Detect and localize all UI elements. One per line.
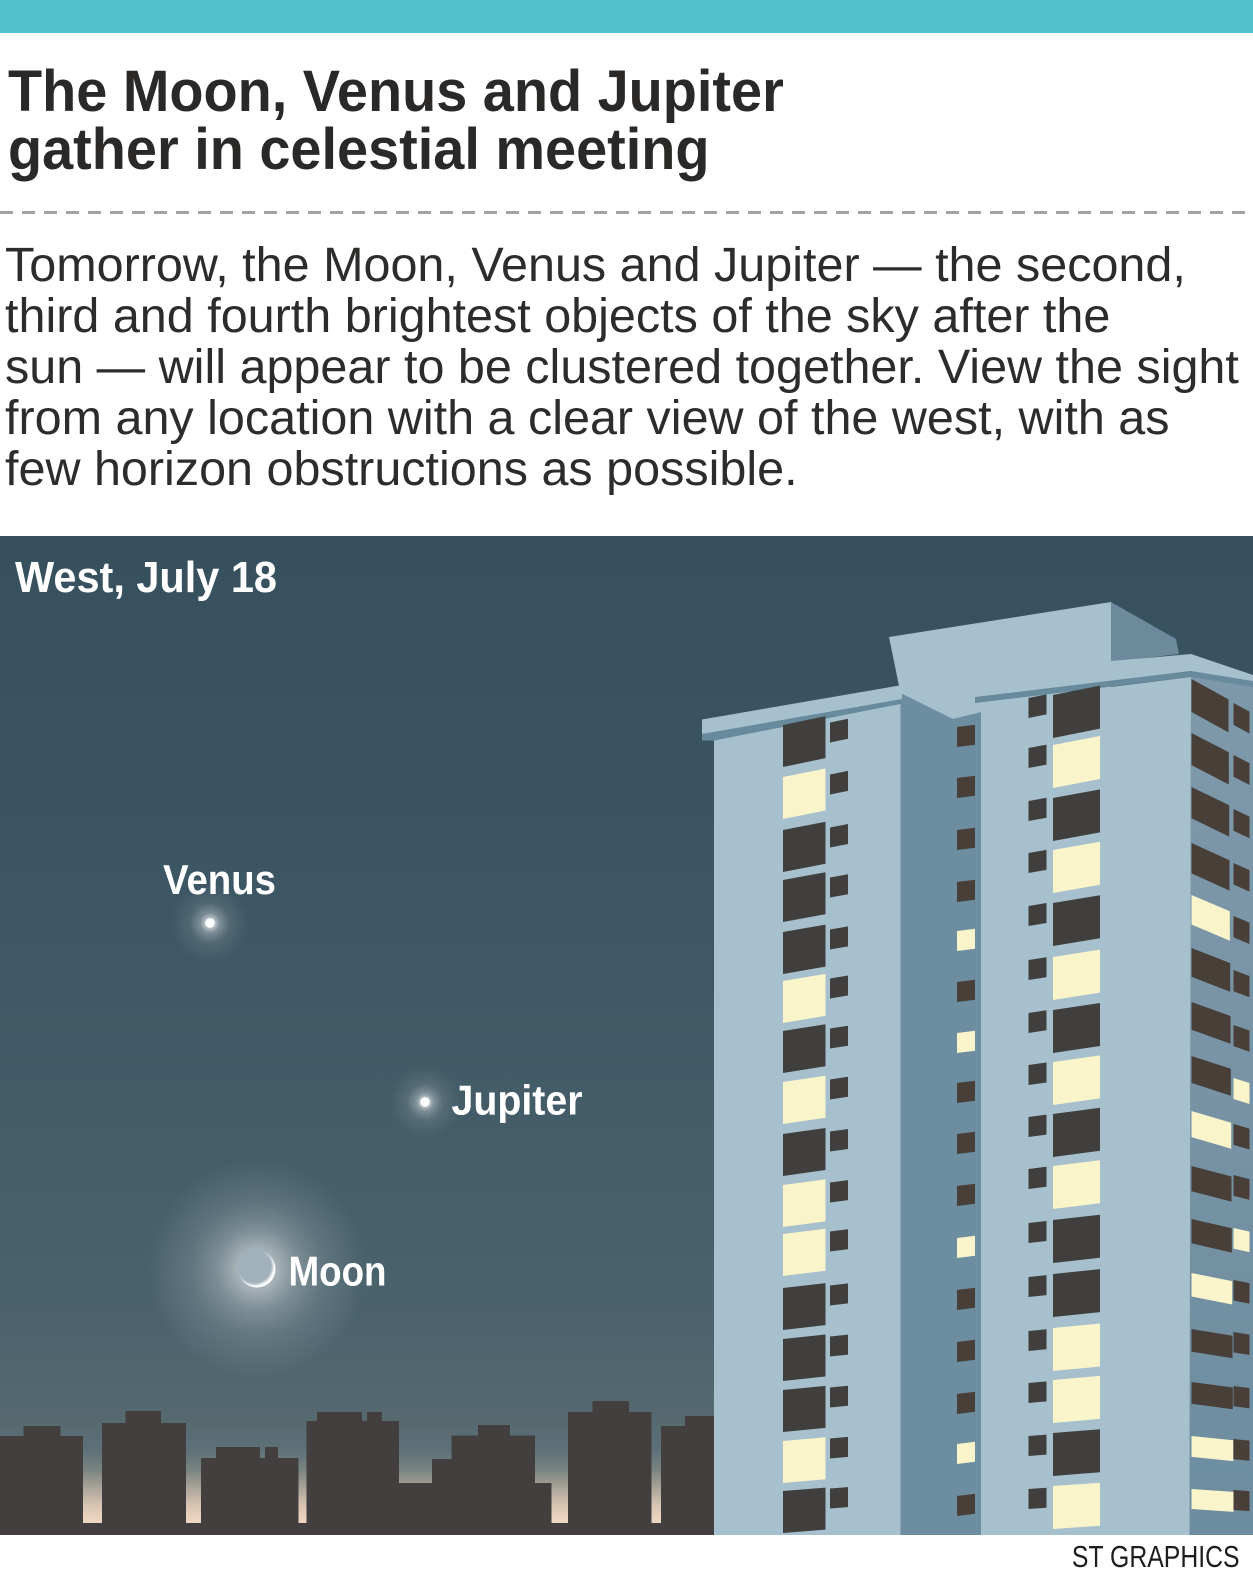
svg-text:Jupiter: Jupiter xyxy=(452,1077,583,1124)
svg-text:West, July 18: West, July 18 xyxy=(15,553,277,602)
svg-text:Venus: Venus xyxy=(163,856,276,903)
svg-text:Moon: Moon xyxy=(289,1248,387,1295)
